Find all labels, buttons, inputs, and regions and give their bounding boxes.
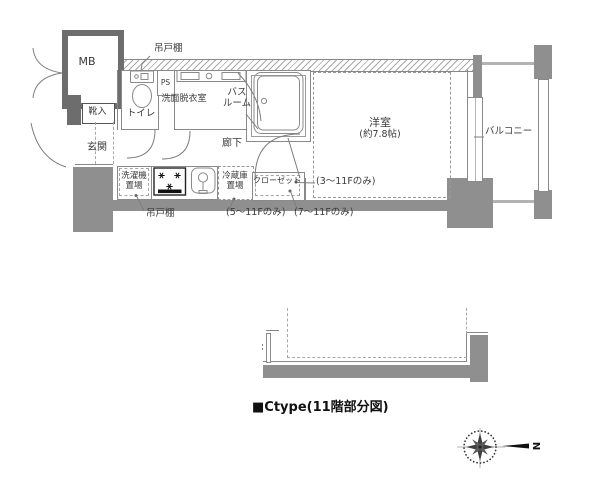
balcony-bottom-edge [493,200,534,203]
label-fridge-space: 冷蔵庫 置場 [218,166,252,198]
label-washer-space: 洗濯機 置場 [117,166,151,198]
label-entrance: 玄関 [80,142,114,154]
label-closet: クローゼット [253,176,297,186]
partial-plan-left-hook [266,333,271,363]
label-floors-5-11: (5〜11Fのみ) [226,207,286,218]
label-fridge-line2: 置場 [226,182,243,192]
partial-plan-left-tick [266,330,279,331]
label-shoe-box: 靴入 [82,103,113,122]
plan-caption: ■Ctype(11階部分図) [252,396,389,415]
southeast-pillar [447,178,493,228]
partial-plan-right-block [470,335,488,382]
toilet-door-arc [127,130,155,158]
entrance-door-arc [31,123,66,167]
toilet-west-wall [117,70,118,130]
label-western-room-size: (約7.8帖) [330,129,430,140]
bathroom-inner-wall [251,75,306,137]
floorplan-canvas: N MB 靴入 玄関 トイレ PS 洗面脱衣室 バス ルーム 廊下 洗濯機 置場… [0,0,616,492]
balcony-top-edge [482,62,534,65]
label-hanging-cabinet-bottom: 吊戸棚 [146,208,175,219]
label-bathroom: バス ルーム [219,87,255,110]
partial-dash-bottom [287,357,467,358]
label-western-room: 洋室 (約7.8帖) [330,116,430,141]
label-hallway: 廊下 [218,138,246,150]
east-wall-segment [467,70,468,98]
partial-dash-right [466,308,467,334]
partial-plan-slab [263,365,470,378]
entrance-step-edge [75,164,113,165]
mb-door-arc-bottom [33,73,62,98]
window-mullion [475,98,476,181]
label-washroom: 洗面脱衣室 [159,94,209,105]
kitchen-counter [151,166,218,200]
label-bathroom-line2: ルーム [219,98,255,109]
north-label: N [530,442,541,450]
label-floors-7-11: (7〜11Fのみ) [294,207,354,218]
label-bathroom-line1: バス [219,87,255,98]
label-balcony: バルコニー [485,126,532,137]
north-arrow [502,444,529,449]
toilet-room [121,70,159,130]
label-hanging-cabinet-top: 吊戸棚 [154,43,183,54]
west-room-window [467,97,483,182]
label-western-room-name: 洋室 [330,116,430,129]
balcony-railing [538,79,549,192]
balcony-rail-bottom-post [534,190,552,219]
partial-plan-edge-line [263,361,467,362]
label-toilet: トイレ [122,108,160,119]
partial-dash-left [287,308,288,358]
compass-rose: N [457,428,541,468]
label-washer-line2: 置場 [125,182,142,192]
balcony-rail-top-post [534,45,552,79]
mb-door-arc-top [33,48,62,73]
label-mb: MB [68,55,106,68]
southwest-wall-block [73,167,113,232]
west-wall [67,95,81,125]
washroom-door-arc [162,131,190,159]
northeast-pillar [473,55,482,98]
label-floors-3-11: (3〜11Fのみ) [316,176,376,187]
label-pipe-space: PS [157,70,174,94]
partial-plan-block-top-line [466,332,488,333]
